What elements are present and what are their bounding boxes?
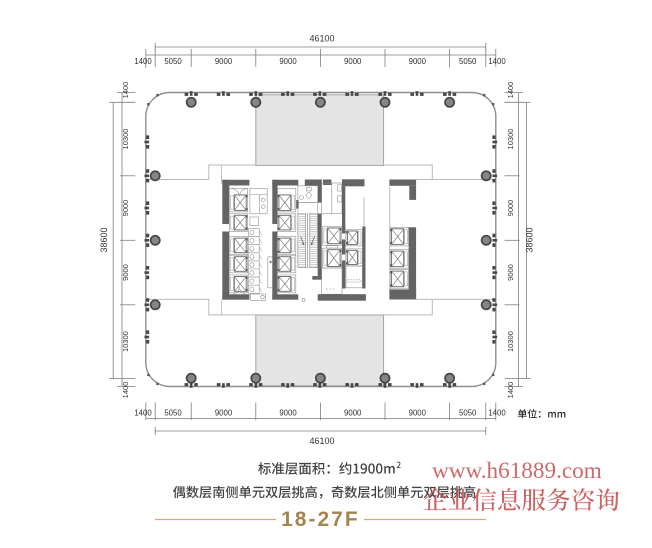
svg-text:1400: 1400 — [121, 382, 130, 399]
svg-text:46100: 46100 — [309, 436, 334, 446]
svg-text:1400: 1400 — [134, 57, 152, 66]
svg-text:9000: 9000 — [215, 57, 233, 66]
svg-text:18-27F: 18-27F — [281, 508, 360, 531]
svg-text:www.h61889.com: www.h61889.com — [432, 458, 602, 484]
svg-text:9000: 9000 — [215, 409, 233, 418]
svg-text:9000: 9000 — [279, 57, 297, 66]
svg-text:38600: 38600 — [99, 227, 109, 252]
svg-text:1400: 1400 — [488, 409, 506, 418]
svg-text:9000: 9000 — [409, 57, 427, 66]
svg-text:9000: 9000 — [279, 409, 297, 418]
svg-text:9000: 9000 — [344, 57, 362, 66]
svg-text:10300: 10300 — [121, 129, 130, 150]
svg-text:5050: 5050 — [164, 409, 182, 418]
svg-text:10300: 10300 — [506, 331, 515, 352]
svg-text:1400: 1400 — [506, 382, 515, 399]
svg-text:5050: 5050 — [459, 409, 477, 418]
svg-text:5050: 5050 — [164, 57, 182, 66]
svg-text:1400: 1400 — [134, 409, 152, 418]
svg-text:9000: 9000 — [409, 409, 427, 418]
svg-text:5050: 5050 — [459, 57, 477, 66]
svg-text:9000: 9000 — [121, 200, 130, 217]
svg-text:1400: 1400 — [506, 82, 515, 99]
svg-text:9000: 9000 — [506, 264, 515, 281]
svg-text:38600: 38600 — [525, 227, 535, 252]
svg-text:1400: 1400 — [488, 57, 506, 66]
svg-text:10300: 10300 — [121, 331, 130, 352]
svg-text:1400: 1400 — [121, 82, 130, 99]
svg-text:10300: 10300 — [506, 129, 515, 150]
svg-text:9000: 9000 — [506, 200, 515, 217]
svg-text:9000: 9000 — [121, 264, 130, 281]
svg-text:9000: 9000 — [344, 409, 362, 418]
svg-text:46100: 46100 — [309, 34, 334, 44]
